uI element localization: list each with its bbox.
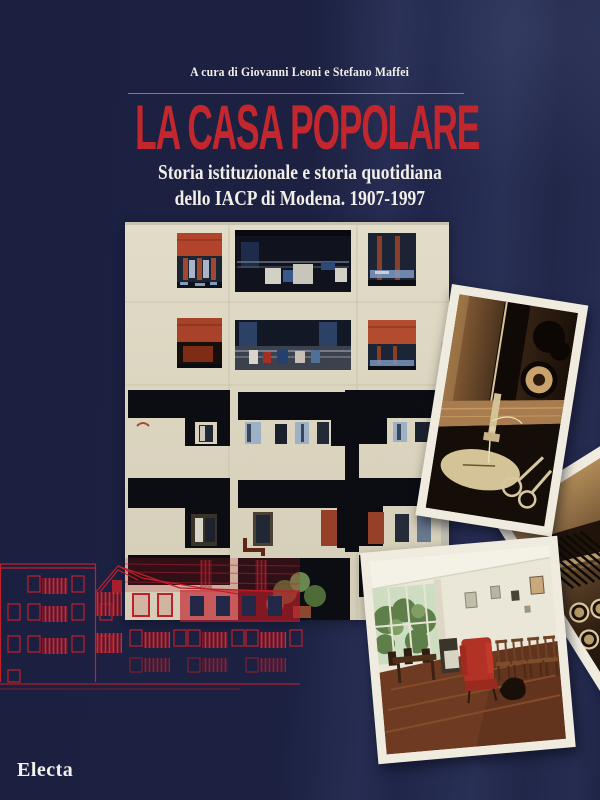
polaroid-interior	[360, 536, 576, 764]
interior-photo-art	[370, 545, 566, 754]
book-subtitle: Storia istituzionale e storia quotidiana…	[0, 159, 600, 211]
book-title-text: LA CASA POPOLARE	[135, 97, 479, 160]
author-line: A cura di Giovanni Leoni e Stefano Maffe…	[0, 64, 600, 80]
subtitle-line-2: dello IACP di Modena. 1907-1997	[0, 185, 600, 211]
publisher-logo: Electa	[17, 759, 73, 782]
sewing-photo-art	[426, 294, 578, 526]
subtitle-line-1: Storia istituzionale e storia quotidiana	[0, 159, 600, 185]
book-title: LA CASA POPOLARE	[0, 97, 600, 160]
elevation-drawing	[0, 552, 336, 700]
book-cover: A cura di Giovanni Leoni e Stefano Maffe…	[0, 0, 600, 800]
author-line-text: A cura di Giovanni Leoni e Stefano Maffe…	[191, 64, 410, 80]
